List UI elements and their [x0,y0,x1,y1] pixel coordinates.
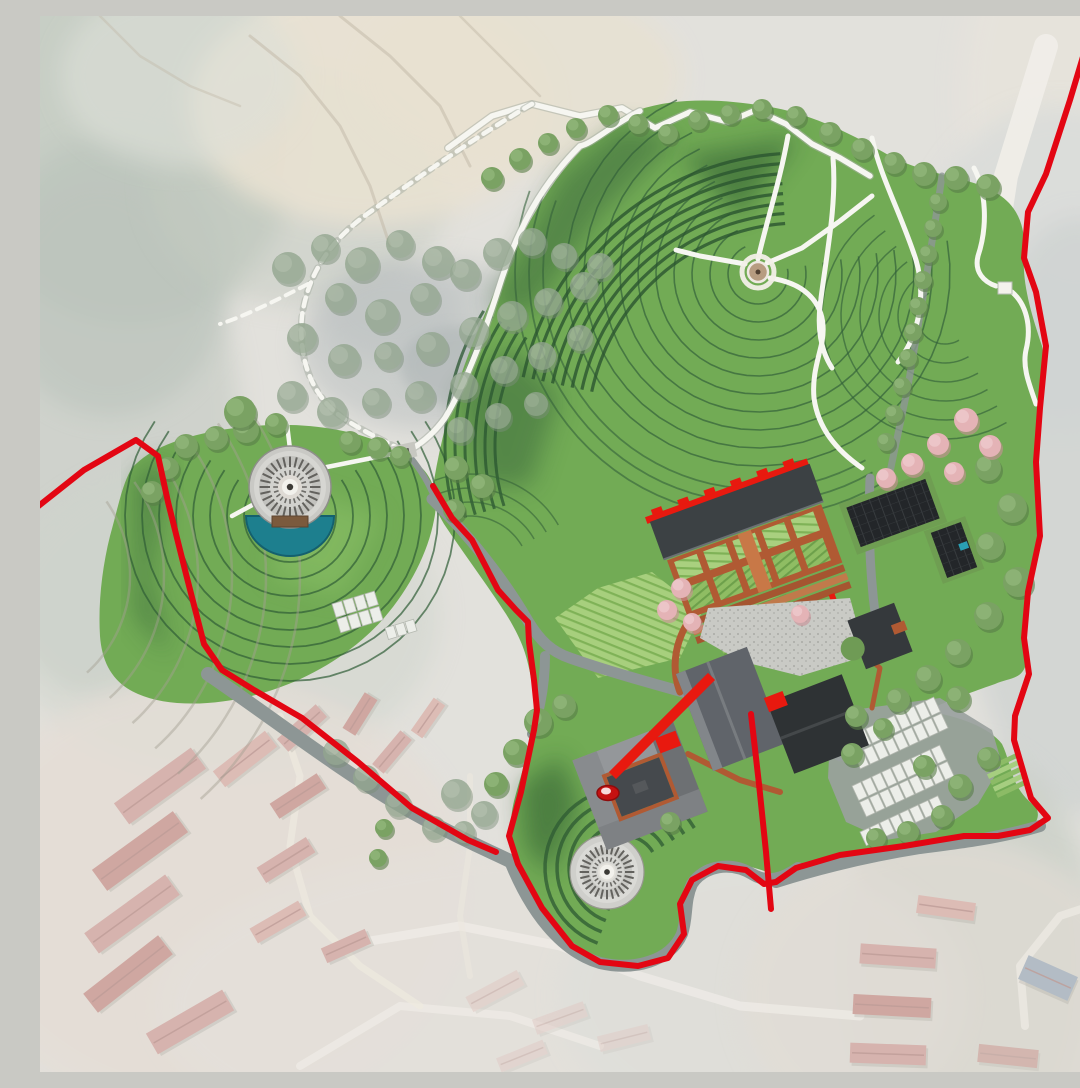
trail-pavilion [998,282,1012,294]
red-feature-highlight [601,788,611,795]
site-plan-rendering [40,16,1080,1072]
summit-viewpoint [742,256,774,288]
masterplan-canvas [40,16,1080,1072]
pond-pavilion [272,516,308,527]
